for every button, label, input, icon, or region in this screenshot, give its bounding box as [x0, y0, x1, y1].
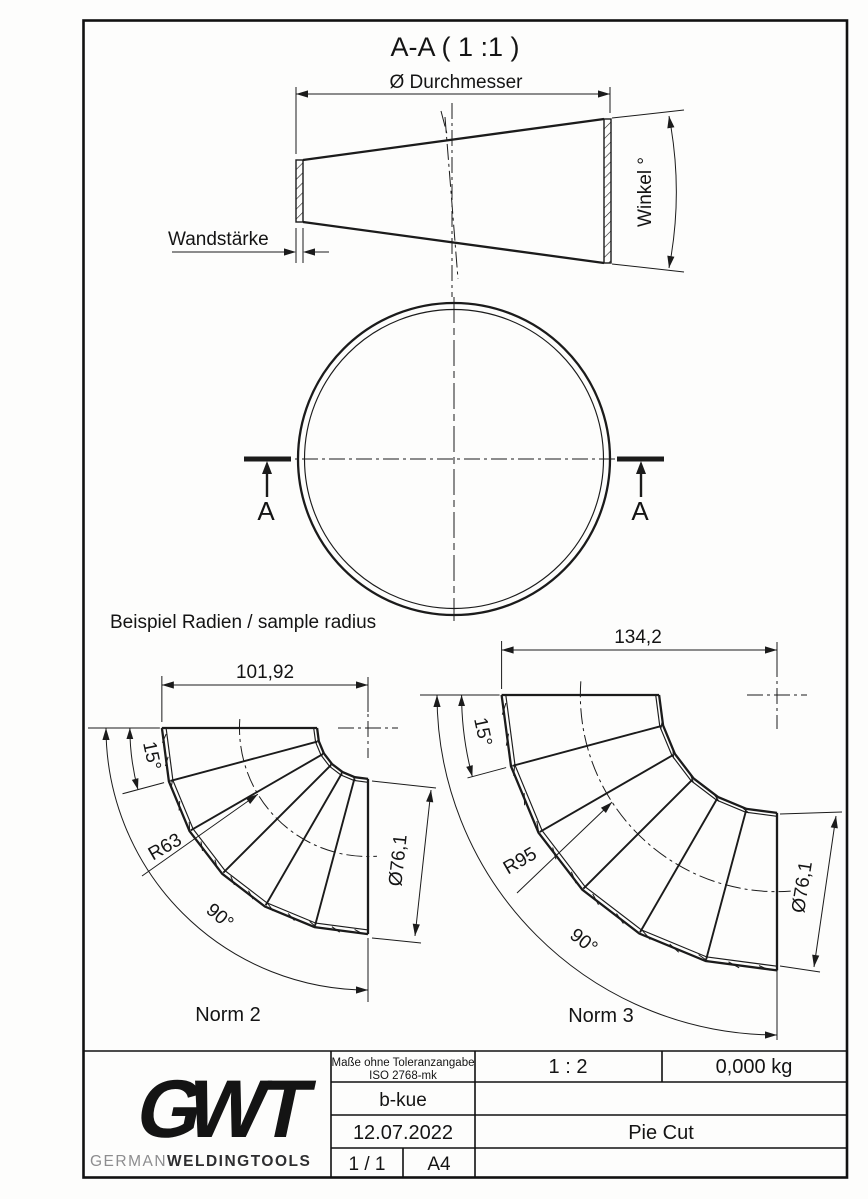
- norm2-bend-angle: 90°: [202, 900, 238, 935]
- section-view-title: A-A ( 1 :1 ): [390, 32, 519, 62]
- sheet-number: 1 / 1: [349, 1154, 386, 1175]
- elbow-3: [420, 641, 842, 1040]
- static-arrowheads: [262, 90, 674, 474]
- norm3-diameter-dim: Ø76,1: [788, 860, 817, 914]
- weight-value: 0,000 kg: [716, 1056, 793, 1078]
- technical-drawing-sheet: A-A ( 1 :1 ) Ø Durchmesser Wandstärke Wi…: [0, 0, 868, 1199]
- norm2-segment-angle: 15°: [138, 740, 165, 772]
- logo-brand-line: GERMANWELDINGTOOLS: [90, 1153, 311, 1170]
- paper-format: A4: [427, 1154, 451, 1175]
- pipe-top-view: [244, 297, 664, 621]
- elbow-linework: [88, 641, 842, 1040]
- logo-brand-bold: WELDINGTOOLS: [167, 1153, 311, 1170]
- author-value: b-kue: [379, 1090, 427, 1111]
- section-marker-right: A: [631, 496, 649, 526]
- logo-brand-light: GERMAN: [90, 1153, 167, 1170]
- gwt-logo: G W T: [129, 1063, 321, 1155]
- part-title: Pie Cut: [628, 1122, 694, 1144]
- angle-dim-label: Winkel °: [635, 157, 656, 227]
- norm2-diameter-dim: Ø76,1: [385, 834, 411, 888]
- tolerance-note-line2: ISO 2768-mk: [369, 1070, 437, 1082]
- sample-radius-heading: Beispiel Radien / sample radius: [110, 612, 376, 633]
- norm3-width-dim: 134,2: [614, 627, 662, 648]
- norm3-segment-angle: 15°: [469, 716, 496, 748]
- norm3-radius-label: R95: [500, 843, 541, 879]
- tolerance-note-line1: Maße ohne Toleranzangabe: [331, 1057, 474, 1069]
- cone-right-wall: [604, 119, 611, 263]
- drawing-canvas: A-A ( 1 :1 ) Ø Durchmesser Wandstärke Wi…: [0, 0, 868, 1199]
- norm3-bend-angle: 90°: [566, 925, 602, 959]
- cone-section-view: [172, 87, 684, 297]
- norm2-width-dim: 101,92: [236, 662, 294, 683]
- norm3-name: Norm 3: [568, 1005, 634, 1027]
- diameter-dim-label: Ø Durchmesser: [389, 72, 523, 93]
- scale-value: 1 : 2: [549, 1056, 588, 1078]
- norm2-name: Norm 2: [195, 1004, 261, 1026]
- section-marker-left: A: [257, 496, 275, 526]
- elbow-2: [88, 676, 436, 1002]
- date-value: 12.07.2022: [353, 1122, 453, 1144]
- wall-thickness-label: Wandstärke: [168, 229, 269, 250]
- cone-left-wall: [296, 160, 303, 222]
